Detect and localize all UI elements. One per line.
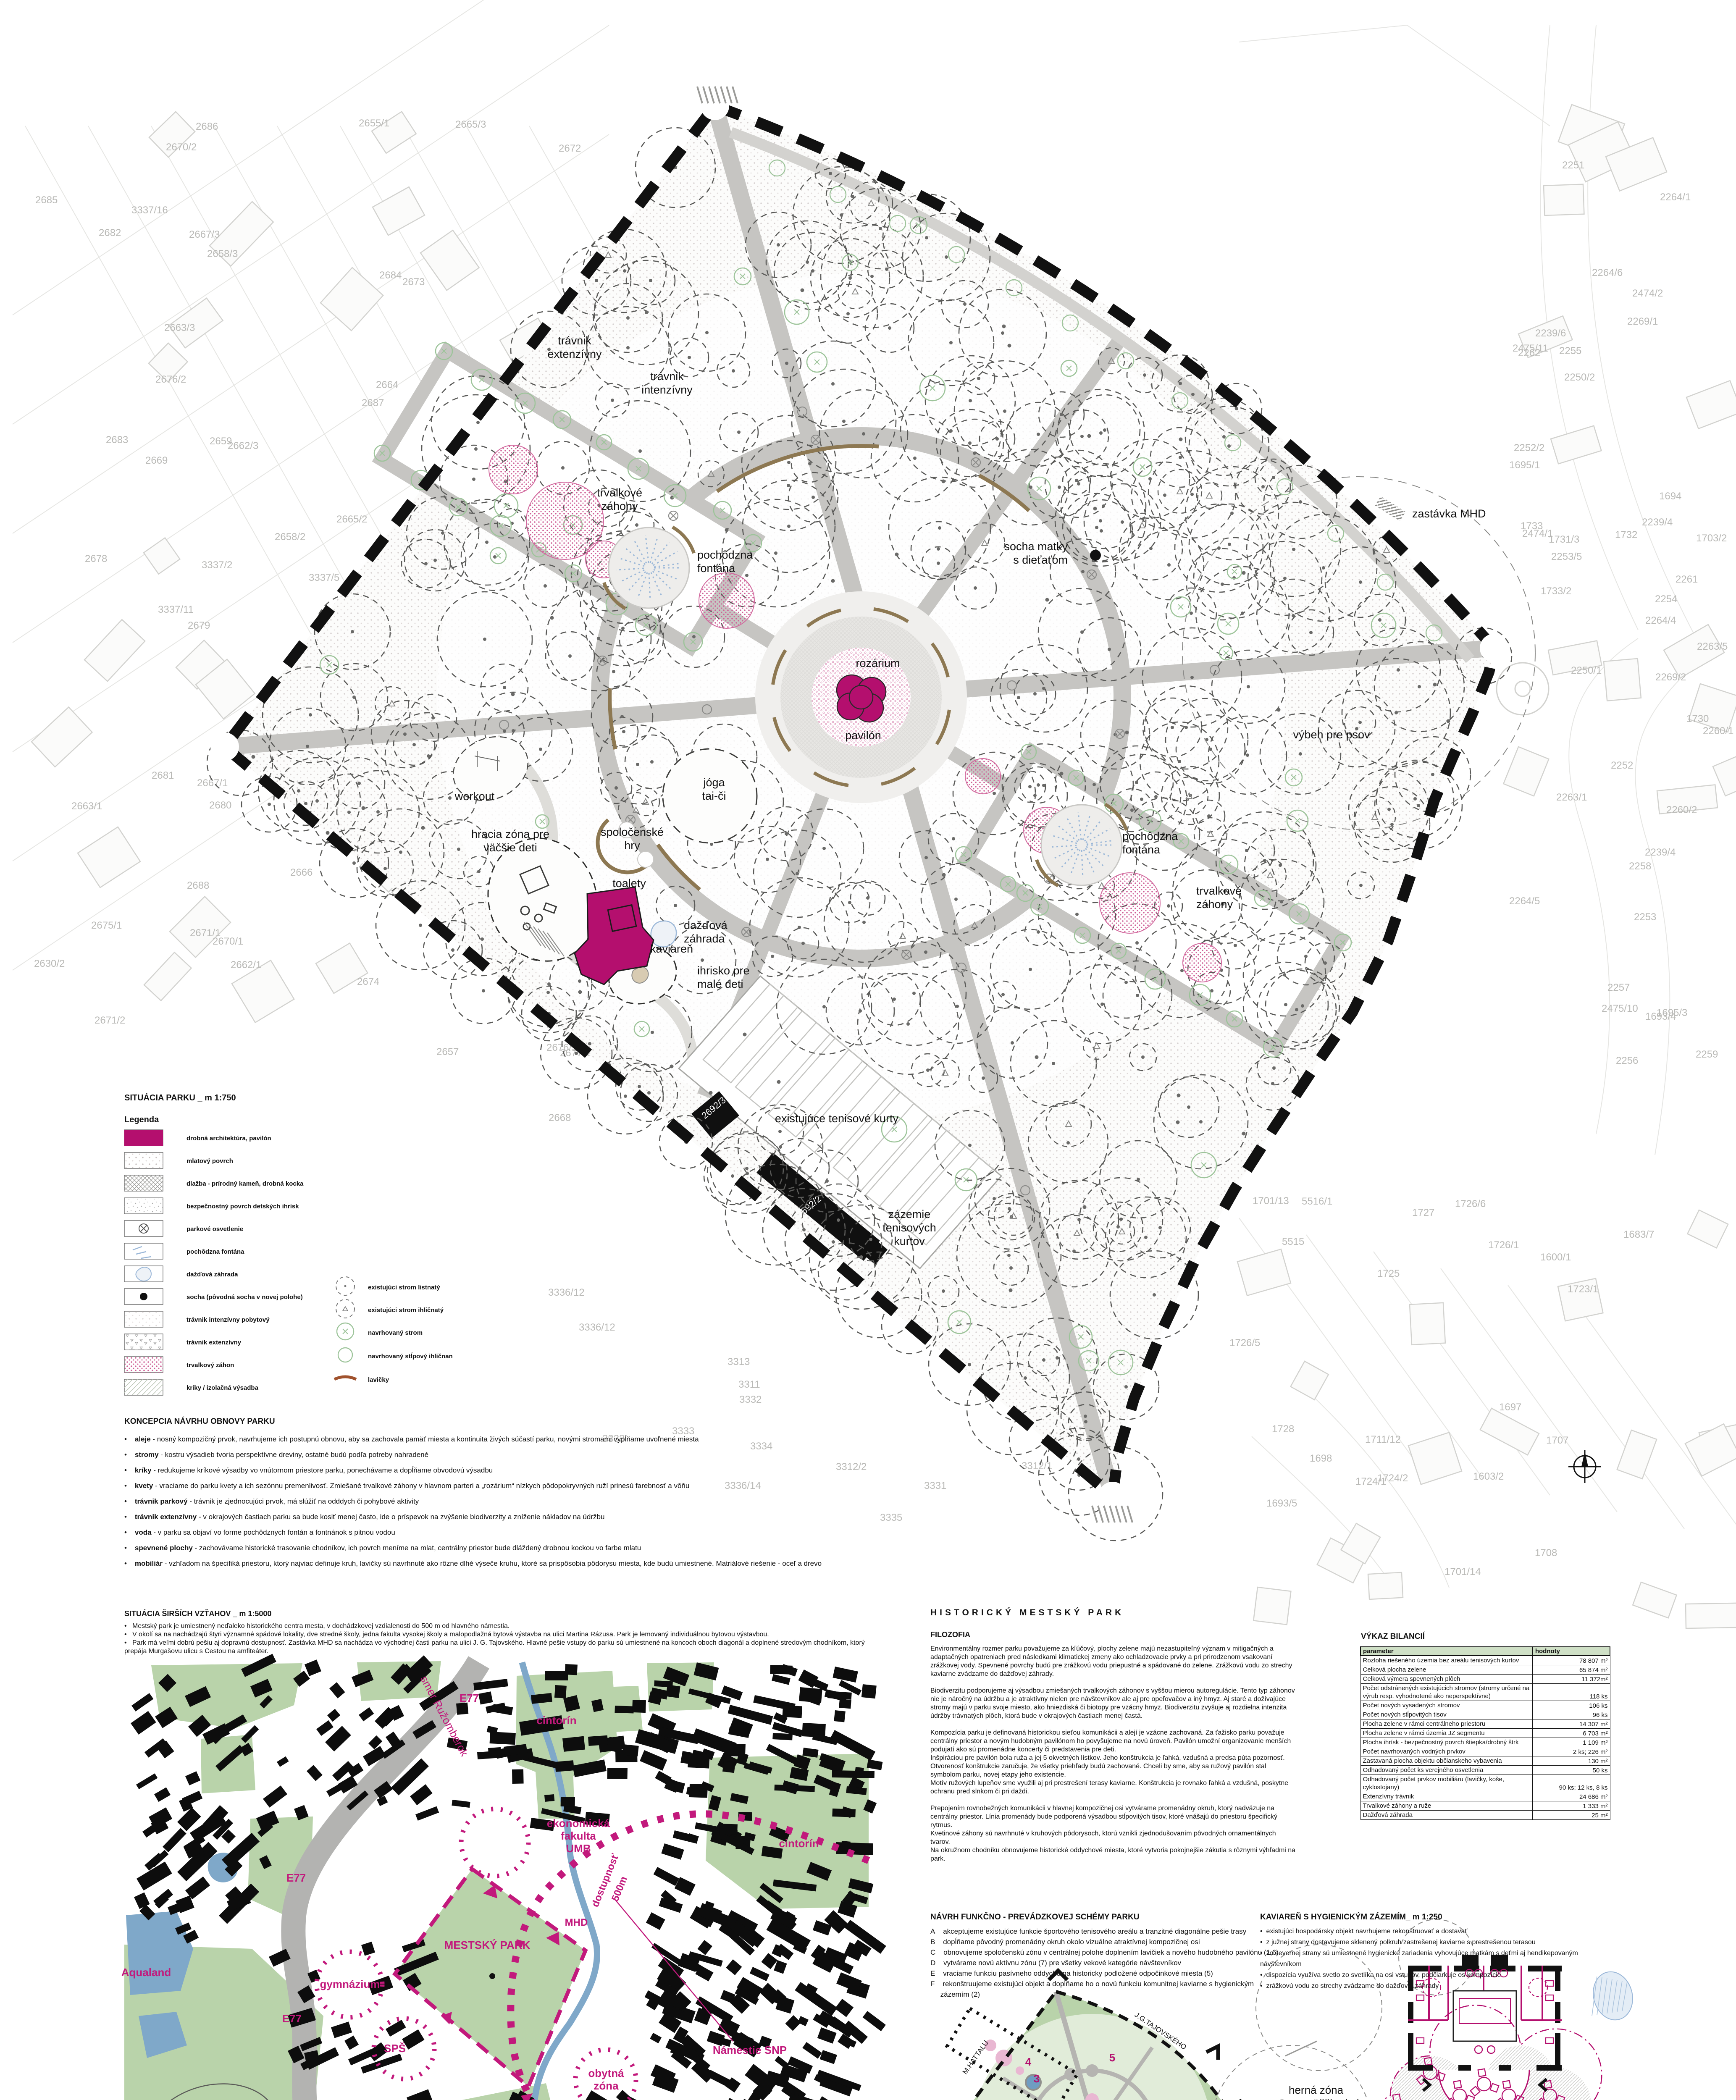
svg-text:2676/2: 2676/2 [155, 374, 186, 385]
svg-text:lavičky: lavičky [368, 1376, 389, 1383]
svg-text:2253: 2253 [1634, 911, 1656, 923]
svg-text:zóna: zóna [594, 2079, 619, 2092]
svg-text:navrhovaný stĺpový ihličnan: navrhovaný stĺpový ihličnan [368, 1352, 453, 1360]
svg-text:1600/1: 1600/1 [1540, 1252, 1571, 1263]
svg-text:existujúci strom listnatý: existujúci strom listnatý [368, 1284, 440, 1291]
svg-text:1695/3: 1695/3 [1657, 1007, 1687, 1018]
svg-text:1731/3: 1731/3 [1549, 534, 1579, 545]
svg-text:5: 5 [1109, 2051, 1115, 2064]
svg-text:3337/11: 3337/11 [158, 604, 194, 615]
svg-text:2663/3: 2663/3 [164, 322, 195, 333]
svg-text:2239/4: 2239/4 [1642, 517, 1673, 528]
svg-text:2674: 2674 [357, 976, 379, 987]
svg-text:2630/2: 2630/2 [34, 958, 65, 969]
svg-text:2680: 2680 [209, 800, 231, 811]
svg-text:2662/3: 2662/3 [228, 440, 258, 451]
svg-text:existujúce tenisové kurty: existujúce tenisové kurty [775, 1112, 899, 1125]
svg-text:dlažba - prírodný kameň, drobn: dlažba - prírodný kameň, drobná kocka [186, 1180, 304, 1187]
svg-text:drobná architektúra, pavilón: drobná architektúra, pavilón [186, 1135, 271, 1142]
svg-text:výbeh pre psov: výbeh pre psov [1293, 728, 1370, 741]
svg-text:2239/6: 2239/6 [1535, 328, 1566, 339]
svg-text:2239/4: 2239/4 [1645, 847, 1676, 858]
svg-text:2260/2: 2260/2 [1666, 804, 1697, 816]
svg-text:2675/1: 2675/1 [91, 920, 122, 931]
svg-text:1730: 1730 [1686, 713, 1709, 724]
svg-text:SPŠ: SPŠ [384, 2042, 406, 2055]
svg-text:2673: 2673 [402, 276, 425, 288]
svg-text:existujúci strom ihličnatý: existujúci strom ihličnatý [368, 1307, 444, 1314]
svg-text:socha matky: socha matky [1004, 540, 1068, 553]
svg-text:kaviareň: kaviareň [650, 942, 693, 955]
svg-text:pre väčšie deti: pre väčšie deti [1289, 2097, 1359, 2100]
svg-text:1726/5: 1726/5 [1229, 1337, 1260, 1349]
svg-text:workout: workout [454, 790, 495, 803]
svg-text:2668: 2668 [549, 1112, 571, 1123]
svg-text:trávnik extenzívny: trávnik extenzívny [186, 1339, 242, 1346]
svg-text:2678: 2678 [85, 553, 107, 564]
svg-text:obytná: obytná [588, 2067, 624, 2079]
svg-text:trávnik: trávnik [558, 334, 591, 347]
svg-text:kríky / izolačná výsadba: kríky / izolačná výsadba [186, 1384, 259, 1391]
svg-text:1726/1: 1726/1 [1488, 1239, 1519, 1251]
svg-text:2269/1: 2269/1 [1627, 316, 1658, 327]
svg-text:2252/2: 2252/2 [1514, 442, 1544, 454]
svg-text:2688: 2688 [187, 880, 209, 891]
svg-text:Legenda: Legenda [124, 1115, 159, 1124]
svg-text:2658/3: 2658/3 [207, 248, 238, 260]
svg-text:spoločenské: spoločenské [601, 826, 664, 838]
svg-text:intenzívny: intenzívny [641, 383, 693, 396]
svg-text:3313: 3313 [727, 1356, 750, 1368]
svg-text:E77: E77 [282, 2012, 302, 2025]
svg-text:Aqualand: Aqualand [121, 1966, 171, 1979]
svg-text:2474/2: 2474/2 [1632, 288, 1663, 299]
svg-text:parkové osvetlenie: parkové osvetlenie [186, 1226, 243, 1233]
svg-text:2664: 2664 [376, 379, 398, 391]
svg-text:navrhovaný strom: navrhovaný strom [368, 1329, 423, 1336]
svg-text:2672: 2672 [559, 143, 581, 154]
svg-text:2264/6: 2264/6 [1592, 267, 1623, 278]
svg-text:fakulta: fakulta [561, 1830, 596, 1842]
svg-text:hracia zóna pre: hracia zóna pre [471, 828, 549, 840]
svg-text:2684: 2684 [379, 270, 402, 281]
svg-text:2252: 2252 [1611, 760, 1633, 771]
svg-text:2670/1: 2670/1 [213, 936, 243, 947]
svg-text:zázemie: zázemie [888, 1208, 931, 1221]
svg-text:5516/1: 5516/1 [1302, 1196, 1332, 1207]
svg-text:3336/12: 3336/12 [548, 1287, 585, 1298]
svg-text:tai-či: tai-či [702, 790, 726, 802]
svg-text:2659: 2659 [210, 436, 232, 447]
svg-text:1703/2: 1703/2 [1696, 533, 1727, 544]
svg-text:kurtov: kurtov [894, 1235, 925, 1247]
svg-text:2263/1: 2263/1 [1556, 792, 1587, 803]
svg-text:cintorín: cintorín [536, 1714, 576, 1727]
svg-text:3337/2: 3337/2 [202, 559, 232, 571]
svg-text:2670/2: 2670/2 [166, 142, 197, 153]
svg-text:1683/7: 1683/7 [1623, 1229, 1654, 1240]
svg-text:1733/2: 1733/2 [1541, 585, 1571, 597]
svg-text:pochôdzna: pochôdzna [1122, 830, 1178, 843]
svg-text:2475/10: 2475/10 [1602, 1003, 1638, 1014]
svg-text:MHD: MHD [565, 1917, 588, 1928]
svg-text:jóga: jóga [703, 776, 725, 789]
svg-text:pavilón: pavilón [845, 729, 881, 742]
svg-text:fontána: fontána [1122, 843, 1161, 856]
svg-text:dažďová: dažďová [684, 919, 728, 932]
svg-text:2667/3: 2667/3 [189, 229, 220, 240]
svg-text:2250/2: 2250/2 [1564, 372, 1595, 383]
svg-text:3311: 3311 [738, 1379, 760, 1390]
svg-text:3337/5: 3337/5 [309, 572, 339, 583]
svg-text:záhony: záhony [1196, 898, 1233, 911]
svg-text:2671/2: 2671/2 [95, 1015, 125, 1026]
svg-text:2683: 2683 [106, 434, 128, 446]
svg-text:2264/1: 2264/1 [1660, 192, 1691, 203]
svg-text:1727: 1727 [1412, 1207, 1434, 1218]
svg-text:1701/13: 1701/13 [1253, 1195, 1289, 1207]
svg-text:2687: 2687 [362, 397, 384, 409]
svg-text:trávnik: trávnik [650, 370, 684, 383]
svg-text:2262: 2262 [1518, 347, 1540, 359]
svg-text:2264/5: 2264/5 [1509, 895, 1540, 907]
svg-text:3336/12: 3336/12 [579, 1322, 615, 1333]
svg-text:2682: 2682 [99, 227, 121, 239]
svg-text:2658/2: 2658/2 [275, 531, 305, 543]
svg-text:trvalkový záhon: trvalkový záhon [186, 1362, 234, 1369]
svg-text:E77: E77 [286, 1872, 306, 1884]
svg-text:trvalkové: trvalkové [597, 486, 642, 499]
svg-text:2263/5: 2263/5 [1697, 641, 1728, 652]
svg-text:2256: 2256 [1616, 1055, 1638, 1066]
svg-text:toalety: toalety [612, 877, 646, 890]
svg-text:1723/1: 1723/1 [1568, 1284, 1598, 1295]
svg-text:pochôdzna: pochôdzna [697, 549, 753, 561]
svg-text:Námestie SNP: Námestie SNP [713, 2044, 787, 2056]
svg-text:5515: 5515 [1282, 1236, 1304, 1247]
svg-text:ekonomická: ekonomická [547, 1817, 610, 1830]
svg-text:2260/1: 2260/1 [1703, 725, 1733, 737]
svg-text:2254: 2254 [1655, 593, 1677, 605]
svg-text:ihrisko pre: ihrisko pre [697, 964, 750, 977]
svg-text:1733: 1733 [1521, 520, 1543, 532]
svg-text:2250/1: 2250/1 [1571, 665, 1602, 676]
svg-text:500m: 500m [609, 1875, 630, 1903]
svg-text:gymnázium: gymnázium [320, 1978, 380, 1990]
svg-text:trvalkové: trvalkové [1196, 885, 1242, 897]
svg-text:1725: 1725 [1377, 1268, 1400, 1279]
svg-text:hry: hry [624, 839, 640, 852]
svg-text:2251: 2251 [1562, 160, 1584, 171]
svg-text:2655/1: 2655/1 [359, 118, 389, 129]
svg-text:s dieťaťom: s dieťaťom [1013, 554, 1068, 566]
svg-text:4: 4 [1025, 2055, 1032, 2068]
svg-text:1695/1: 1695/1 [1509, 459, 1540, 471]
svg-text:2261: 2261 [1676, 574, 1698, 585]
svg-text:socha (pôvodná socha v novej p: socha (pôvodná socha v novej polohe) [186, 1294, 303, 1301]
svg-text:2258: 2258 [1629, 861, 1651, 872]
svg-text:herná zóna: herná zóna [1289, 2084, 1344, 2096]
svg-text:malé deti: malé deti [697, 978, 743, 990]
svg-text:M.HATTALU: M.HATTALU [961, 2039, 990, 2076]
svg-text:2662/1: 2662/1 [231, 959, 261, 971]
svg-text:2681: 2681 [152, 770, 174, 781]
svg-text:záhony: záhony [601, 500, 638, 512]
svg-text:1697: 1697 [1499, 1402, 1521, 1413]
svg-text:2264/4: 2264/4 [1645, 615, 1676, 626]
svg-text:2666: 2666 [290, 867, 313, 878]
svg-text:2253/5: 2253/5 [1551, 551, 1582, 562]
svg-text:2269/2: 2269/2 [1655, 672, 1686, 683]
svg-text:mlatový povrch: mlatový povrch [186, 1158, 233, 1165]
svg-text:väčšie deti: väčšie deti [483, 841, 537, 854]
svg-text:2679: 2679 [188, 620, 210, 631]
svg-text:2686: 2686 [196, 121, 218, 132]
svg-text:2257: 2257 [1607, 982, 1630, 993]
svg-text:1732: 1732 [1615, 529, 1637, 541]
svg-text:fontána: fontána [697, 562, 735, 575]
svg-text:zastávka MHD: zastávka MHD [1412, 507, 1486, 520]
svg-text:3332: 3332 [739, 1394, 762, 1405]
svg-text:UMB: UMB [566, 1842, 591, 1855]
svg-text:E77: E77 [460, 1692, 479, 1704]
svg-text:1694: 1694 [1659, 491, 1681, 502]
svg-text:1726/6: 1726/6 [1455, 1198, 1486, 1210]
svg-text:rozárium: rozárium [856, 657, 900, 669]
svg-text:2669: 2669 [145, 455, 168, 466]
svg-text:2665/2: 2665/2 [336, 514, 367, 525]
svg-text:2665/3: 2665/3 [455, 119, 486, 130]
svg-text:2657: 2657 [436, 1046, 459, 1058]
svg-text:bezpečnostný povrch detských i: bezpečnostný povrch detských ihrísk [186, 1203, 299, 1210]
svg-text:MESTSKÝ PARK: MESTSKÝ PARK [444, 1939, 531, 1951]
svg-text:2685: 2685 [35, 194, 58, 206]
svg-text:2663/1: 2663/1 [71, 801, 102, 812]
svg-text:3: 3 [1034, 2072, 1040, 2085]
svg-text:2255: 2255 [1559, 345, 1581, 357]
svg-text:cintorín: cintorín [779, 1837, 819, 1850]
svg-text:2259: 2259 [1696, 1049, 1718, 1060]
svg-text:2667/1: 2667/1 [197, 777, 228, 789]
svg-text:tenisových: tenisových [882, 1221, 936, 1234]
svg-text:trávnik intenzívny pobytový: trávnik intenzívny pobytový [186, 1316, 270, 1323]
svg-text:3337/16: 3337/16 [131, 205, 168, 216]
svg-text:SITUÁCIA PARKU _ m 1:750: SITUÁCIA PARKU _ m 1:750 [124, 1093, 236, 1102]
svg-text:pochôdzna fontána: pochôdzna fontána [186, 1248, 244, 1255]
svg-text:dažďová záhrada: dažďová záhrada [186, 1271, 238, 1278]
svg-text:extenzívny: extenzívny [547, 348, 602, 360]
